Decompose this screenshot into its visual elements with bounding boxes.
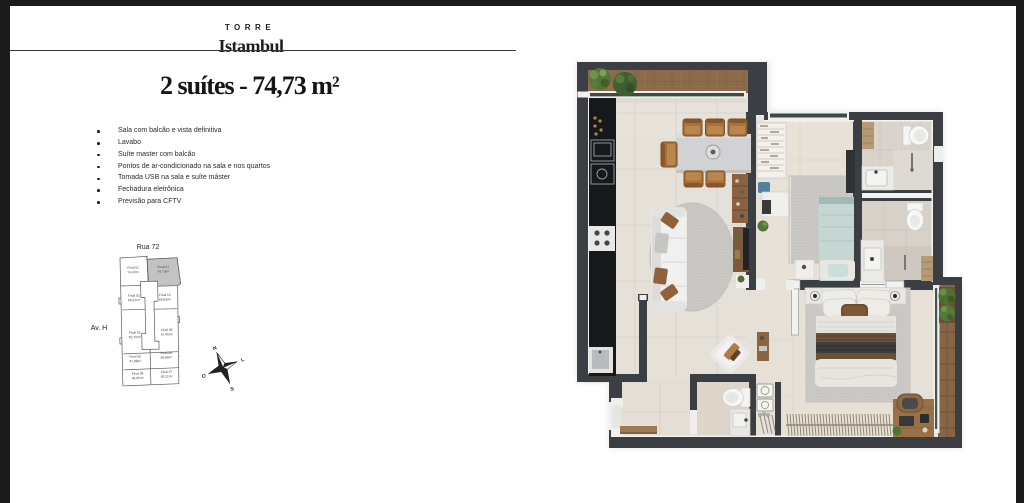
svg-text:49,05m²: 49,05m² <box>132 376 145 380</box>
svg-text:68,83m²: 68,83m² <box>159 297 172 301</box>
svg-text:Av. H: Av. H <box>91 325 107 332</box>
svg-text:O: O <box>201 373 207 380</box>
svg-text:74,47m²: 74,47m² <box>127 270 140 274</box>
svg-text:L: L <box>240 357 245 364</box>
svg-text:47,45m²: 47,45m² <box>161 332 174 336</box>
svg-text:S: S <box>230 386 236 393</box>
svg-text:50,11m²: 50,11m² <box>161 374 174 378</box>
svg-text:Rua 72: Rua 72 <box>137 244 160 251</box>
svg-text:50,70m²: 50,70m² <box>129 335 142 339</box>
svg-text:74,73m²: 74,73m² <box>157 269 170 273</box>
svg-text:N: N <box>212 345 218 352</box>
svg-text:69,52m²: 69,52m² <box>128 298 141 302</box>
svg-text:48,66m²: 48,66m² <box>160 355 173 359</box>
svg-text:47,89m²: 47,89m² <box>129 359 142 363</box>
